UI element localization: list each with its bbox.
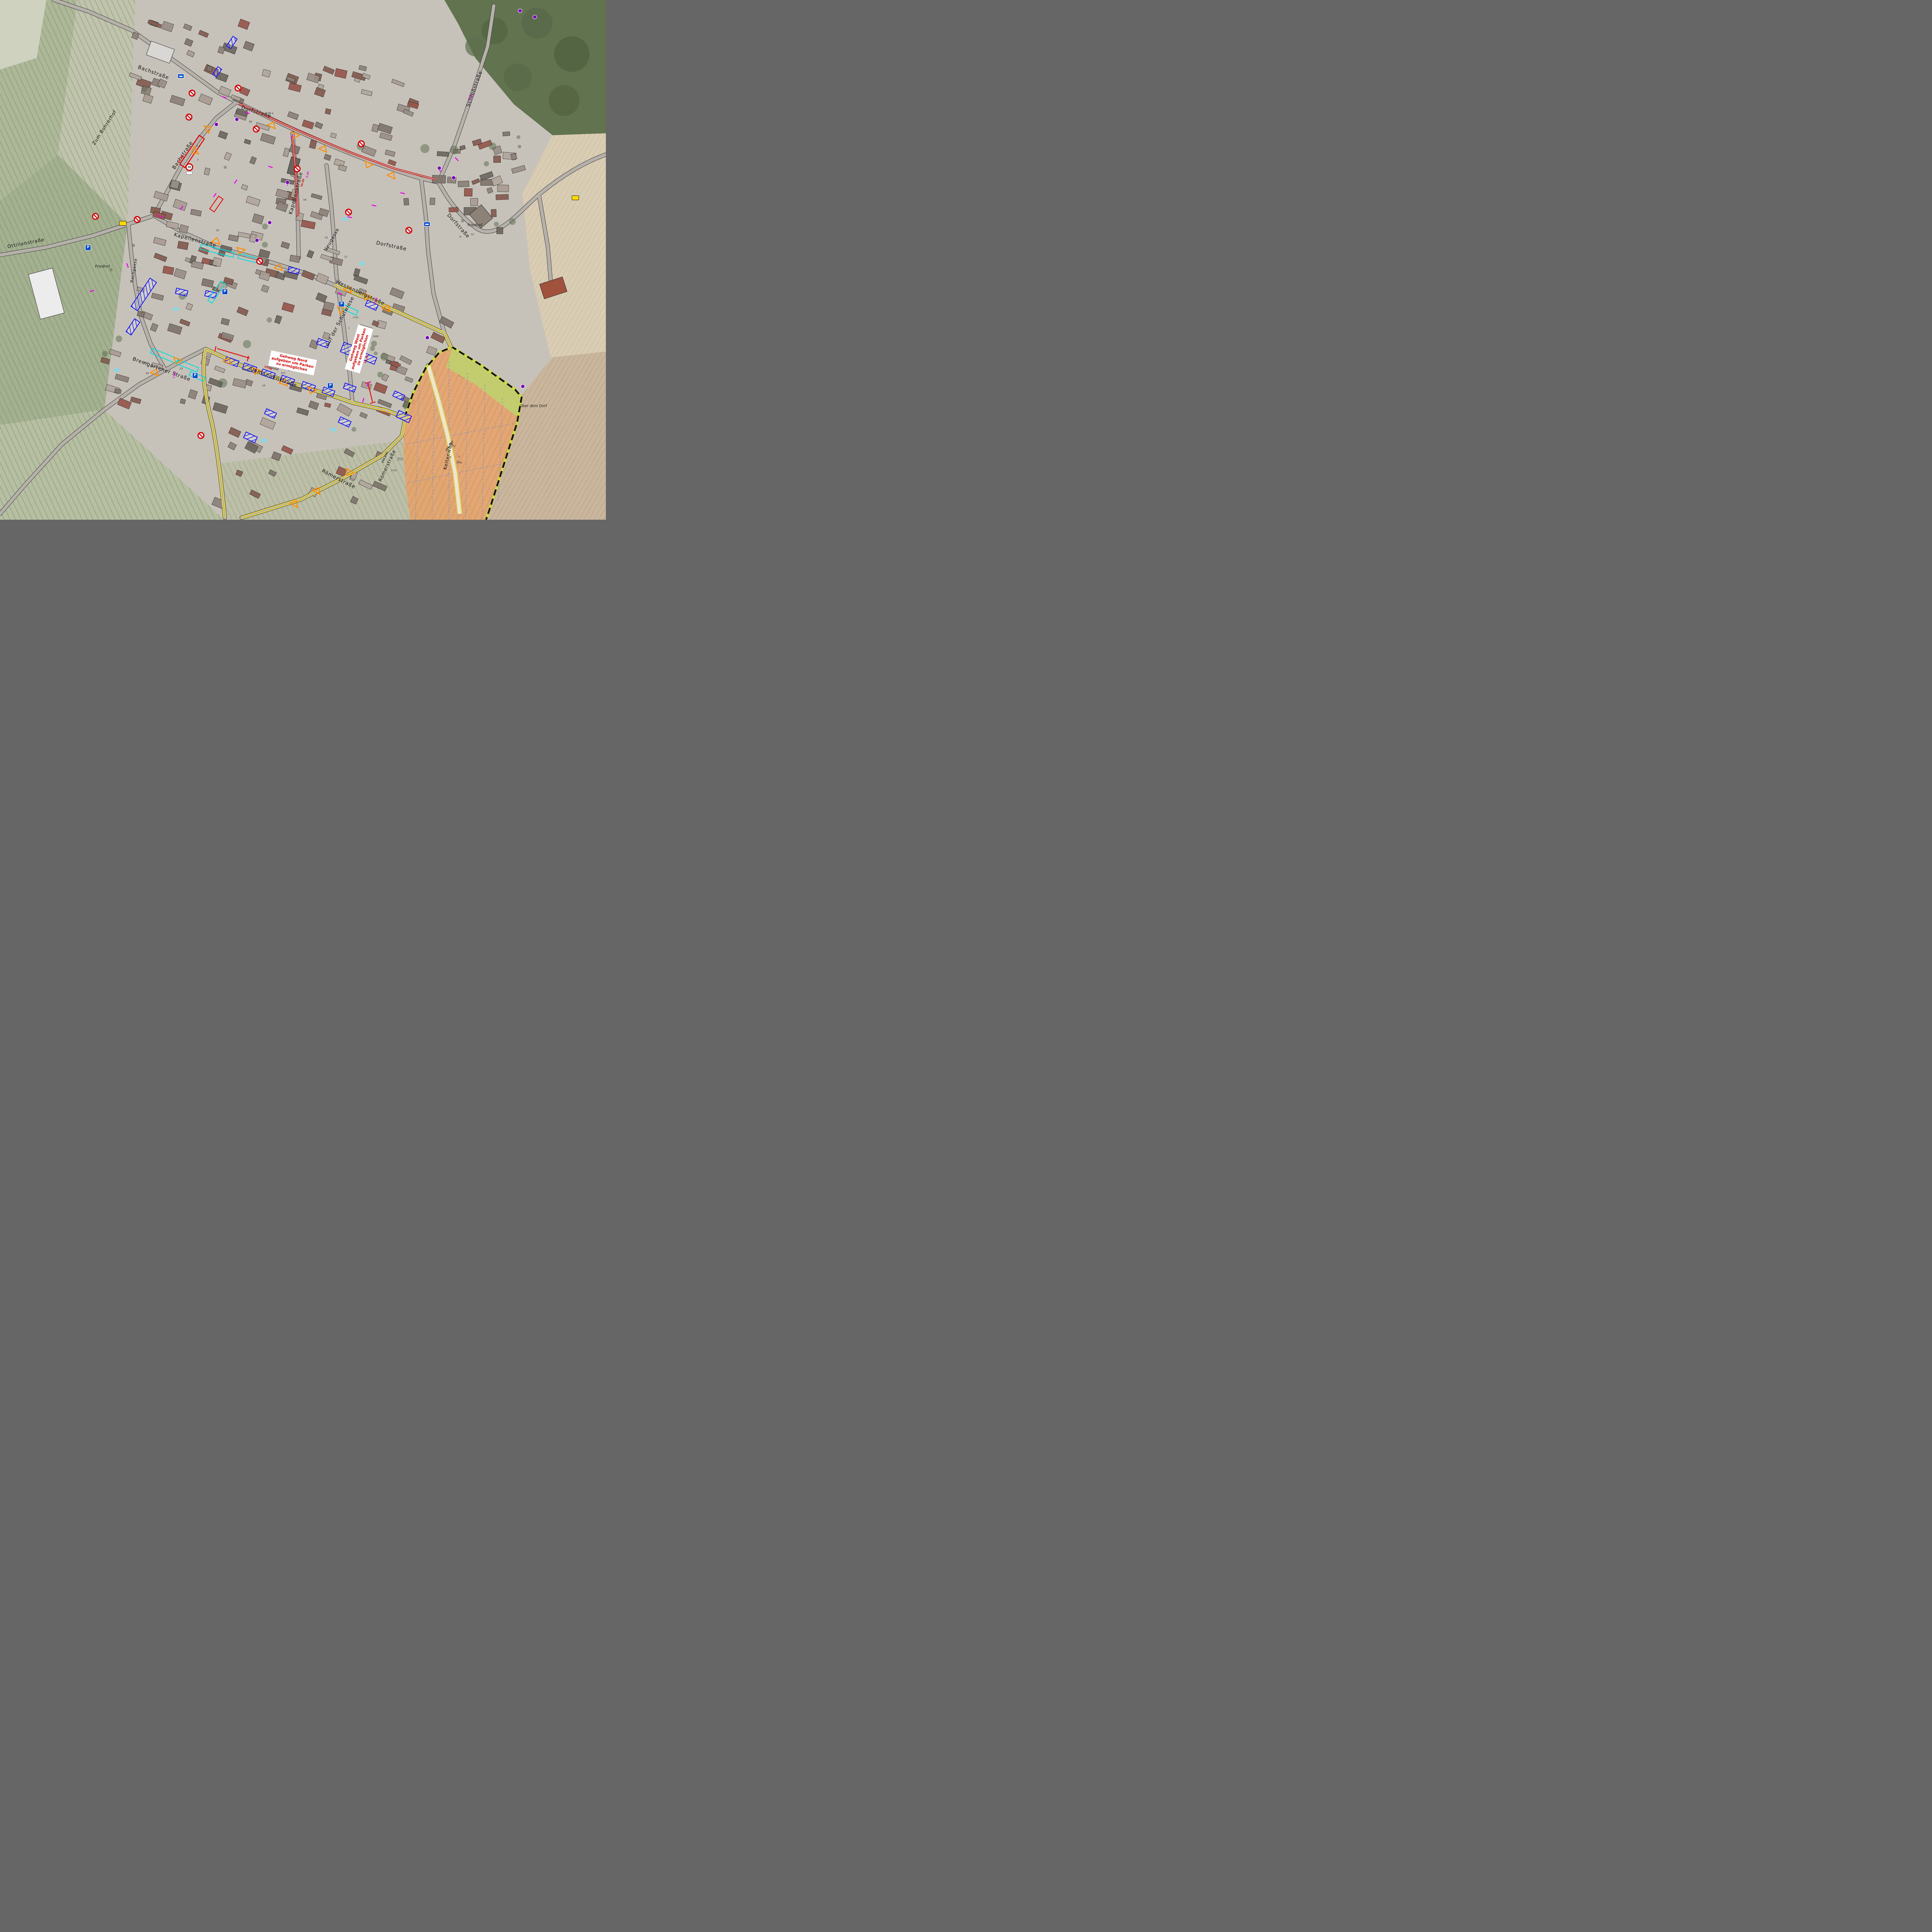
pool bbox=[173, 307, 179, 311]
building bbox=[503, 132, 510, 136]
building bbox=[449, 207, 459, 212]
tree bbox=[517, 135, 520, 139]
tree bbox=[283, 270, 287, 274]
tree bbox=[380, 353, 388, 361]
tree bbox=[494, 222, 499, 227]
building bbox=[170, 180, 180, 189]
tree bbox=[224, 166, 227, 169]
tree bbox=[357, 142, 365, 150]
tree bbox=[116, 335, 122, 342]
tree bbox=[132, 244, 135, 247]
building bbox=[493, 156, 500, 162]
building bbox=[497, 228, 503, 234]
building bbox=[180, 399, 185, 404]
building bbox=[325, 109, 331, 114]
tree bbox=[370, 346, 375, 351]
building bbox=[447, 177, 456, 184]
building bbox=[496, 194, 509, 200]
tree bbox=[262, 224, 268, 230]
building bbox=[430, 198, 435, 205]
tree bbox=[489, 143, 497, 150]
tree bbox=[267, 317, 272, 322]
pool bbox=[359, 262, 365, 265]
aerial-map-svg bbox=[0, 0, 606, 520]
magenta-measure-tick bbox=[426, 226, 430, 227]
pool bbox=[330, 428, 336, 432]
tree bbox=[377, 372, 383, 378]
building bbox=[471, 198, 478, 206]
pool bbox=[342, 217, 348, 221]
tree bbox=[374, 352, 378, 355]
map-stage: BachstraßeBachstraßeDorfstraßeDorfstraße… bbox=[0, 0, 606, 520]
tree bbox=[218, 378, 227, 388]
tree bbox=[262, 242, 268, 248]
pool bbox=[261, 439, 267, 442]
building bbox=[497, 185, 509, 192]
building bbox=[437, 151, 449, 156]
pool bbox=[114, 368, 119, 372]
tree bbox=[484, 161, 489, 166]
tree bbox=[450, 146, 459, 155]
tree bbox=[243, 340, 251, 348]
tree bbox=[141, 86, 147, 92]
building bbox=[464, 189, 472, 196]
tree bbox=[509, 218, 516, 225]
tree bbox=[102, 351, 108, 357]
tree bbox=[461, 219, 464, 223]
tree bbox=[420, 144, 429, 153]
building bbox=[403, 198, 409, 205]
building bbox=[491, 209, 497, 217]
tree bbox=[109, 268, 113, 272]
tree bbox=[518, 145, 521, 148]
tree bbox=[352, 427, 356, 432]
tree bbox=[371, 341, 377, 347]
building bbox=[458, 181, 469, 187]
